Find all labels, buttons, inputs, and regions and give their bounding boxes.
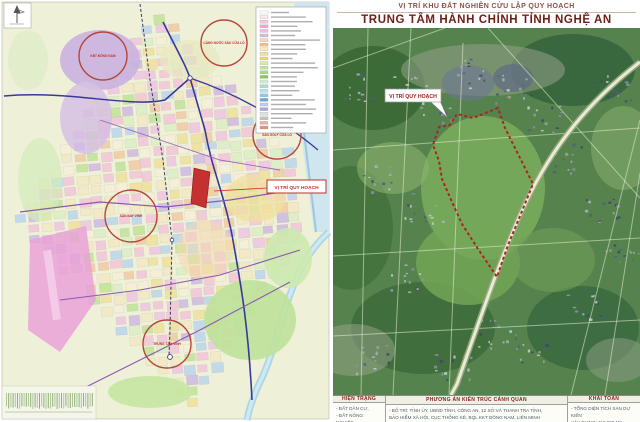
col-plan-header: PHƯƠNG ÁN KIẾN TRÚC CẢNH QUAN [386, 396, 567, 405]
satellite-map: VỊ TRÍ QUY HOẠCH [333, 28, 640, 395]
estimate-line-1: - TỔNG DIỆN TÍCH SÀN DỰ KIẾN [571, 405, 637, 420]
title-area: VỊ TRÍ KHU ĐẤT NGHIÊN CỨU LẬP QUY HOẠCH … [333, 0, 640, 28]
status-line-2: - ĐẤT NÔNG NGHIỆP, [336, 412, 382, 422]
poster-title: TRUNG TÂM HÀNH CHÍNH TỈNH NGHỆ AN [333, 14, 640, 26]
circle-label-5: TRUNG TÂM VINH [153, 341, 181, 346]
info-table: HIỆN TRẠNG - ĐẤT DÂN CƯ, - ĐẤT NÔNG NGHI… [333, 395, 640, 422]
master-plan-map: KĐT ĐÔNG NAM CẢNG NƯỚC SÂU CỬA LÒ SÂN GO… [0, 0, 331, 422]
site-callout-label: VỊ TRÍ QUY HOẠCH [389, 92, 437, 100]
table-col-status: HIỆN TRẠNG - ĐẤT DÂN CƯ, - ĐẤT NÔNG NGHI… [333, 396, 386, 422]
circle-label-1: KĐT ĐÔNG NAM [90, 53, 115, 58]
col-status-header: HIỆN TRẠNG [333, 396, 385, 403]
plan-line-1: - BỐ TRÍ: TỈNH ỦY, UBND TỈNH, CÔNG AN, 1… [389, 407, 564, 414]
circle-label-2: CẢNG NƯỚC SÂU CỬA LÒ [203, 40, 245, 45]
master-plan-map-panel: KĐT ĐÔNG NAM CẢNG NƯỚC SÂU CỬA LÒ SÂN GO… [0, 0, 331, 422]
title-divider [337, 12, 636, 13]
compass-rose [4, 3, 31, 28]
plan-line-2: BẢO HIỂM XÃ HỘI, CỤC THỐNG KÊ, BQL KKT Đ… [389, 414, 564, 421]
section-strip [2, 386, 96, 419]
table-col-plan: PHƯƠNG ÁN KIẾN TRÚC CẢNH QUAN - BỐ TRÍ: … [386, 396, 568, 422]
table-col-estimate: KHÁI TOÁN - TỔNG DIỆN TÍCH SÀN DỰ KIẾN X… [568, 396, 640, 422]
satellite-image: VỊ TRÍ QUY HOẠCH [333, 28, 640, 395]
planning-poster: KĐT ĐÔNG NAM CẢNG NƯỚC SÂU CỬA LÒ SÂN GO… [0, 0, 640, 422]
status-line-1: - ĐẤT DÂN CƯ, [336, 405, 382, 412]
legend-box [256, 7, 326, 133]
satellite-location-panel: VỊ TRÍ KHU ĐẤT NGHIÊN CỨU LẬP QUY HOẠCH … [333, 0, 640, 422]
poster-subtitle: VỊ TRÍ KHU ĐẤT NGHIÊN CỨU LẬP QUY HOẠCH [333, 0, 640, 10]
circle-label-4: SÂN BAY VINH [120, 213, 143, 218]
col-estimate-header: KHÁI TOÁN [568, 396, 640, 403]
